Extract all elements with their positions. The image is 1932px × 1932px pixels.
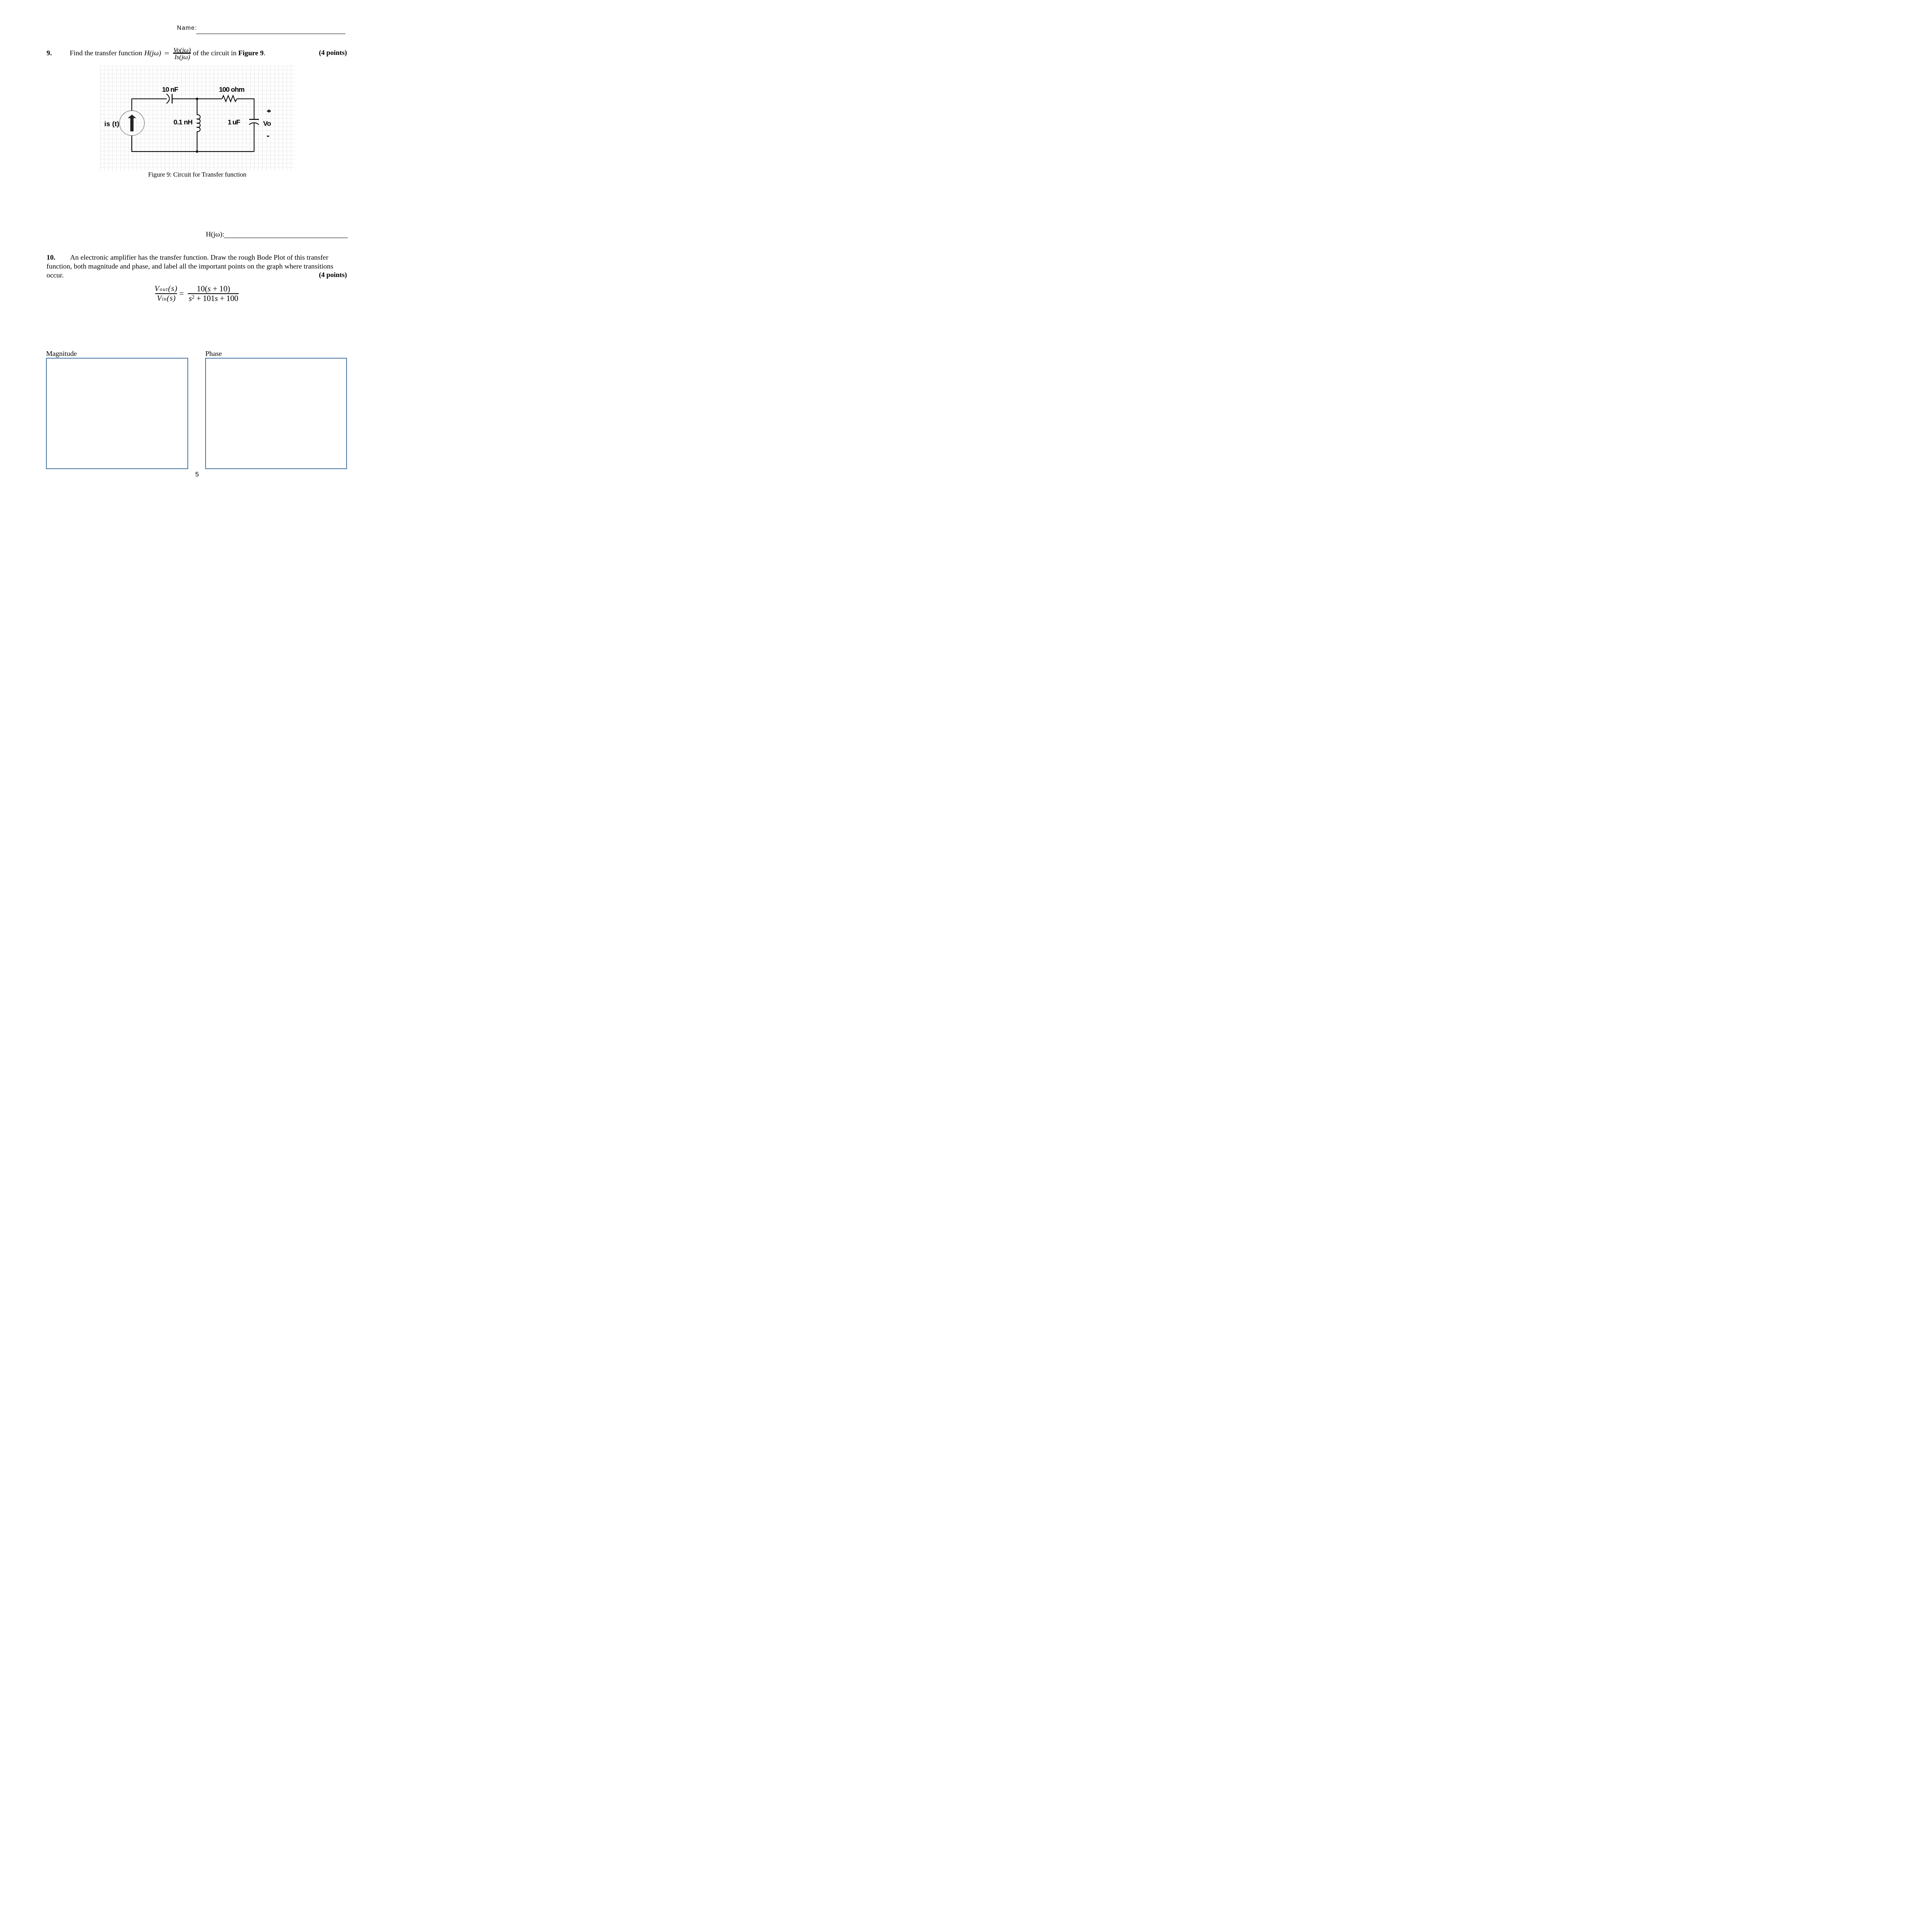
svg-text:Vo: Vo [263,120,271,128]
svg-text:10 nF: 10 nF [162,85,179,93]
svg-text:0.1 nH: 0.1 nH [173,118,193,126]
svg-text:100 ohm: 100 ohm [219,85,245,93]
svg-text:1 uF: 1 uF [228,118,240,126]
svg-text:is (t): is (t) [104,120,119,128]
